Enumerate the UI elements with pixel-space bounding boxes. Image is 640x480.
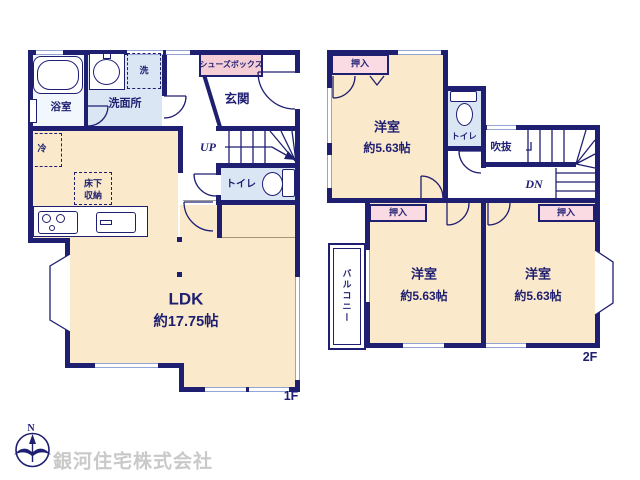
shoebox-label: シューズボックス [199, 61, 262, 69]
washroom-label: 洗面所 [109, 99, 142, 110]
bay-window-2f [595, 250, 613, 315]
bay-window-1f [50, 254, 70, 332]
company-name: 銀河住宅株式会社 [53, 453, 213, 472]
bedroom1-label: 洋室 [374, 121, 400, 134]
void-label: 吹抜 [491, 142, 512, 153]
bedroom1-size-label: 約5.63帖 [363, 142, 410, 154]
floor2-label: 2F [583, 351, 598, 364]
floor1-label: 1F [284, 390, 299, 403]
compass-icon [14, 434, 51, 467]
stairs-up-label: UP [200, 141, 216, 153]
toilet1-label: トイレ [226, 180, 256, 190]
compass-north-label: N [27, 424, 34, 434]
floor-storage-label-1: 床下 [84, 180, 102, 189]
closet-label: 押入 [389, 209, 407, 218]
fridge-label: 冷 [37, 145, 46, 154]
floor-storage-label-2: 収納 [84, 192, 102, 201]
entrance-label: 玄関 [224, 93, 249, 106]
floor-plan: 浴室 洗面所 洗 シューズボックス 玄関 UP トイレ 冷 床下 収納 LDK … [0, 0, 640, 480]
plan-linework [0, 0, 640, 480]
bath-label: 浴室 [51, 102, 72, 113]
bedroom2-size-label: 約5.63帖 [400, 290, 447, 302]
bedroom2-label: 洋室 [411, 268, 437, 281]
closet-label: 押入 [351, 60, 369, 69]
door-arcs-1f [88, 72, 295, 231]
ldk-size-label: 約17.75帖 [153, 315, 218, 330]
door-arcs-2f [333, 76, 510, 225]
ldk-label: LDK [169, 291, 204, 308]
closet-label: 押入 [557, 209, 575, 218]
stairs-down-label: DN [525, 178, 542, 190]
toilet2-label: トイレ [451, 132, 477, 141]
bedroom3-size-label: 約5.63帖 [514, 290, 561, 302]
balcony-label: バルコニー [342, 269, 351, 324]
bedroom3-label: 洋室 [525, 268, 551, 281]
laundry-label: 洗 [139, 67, 148, 76]
